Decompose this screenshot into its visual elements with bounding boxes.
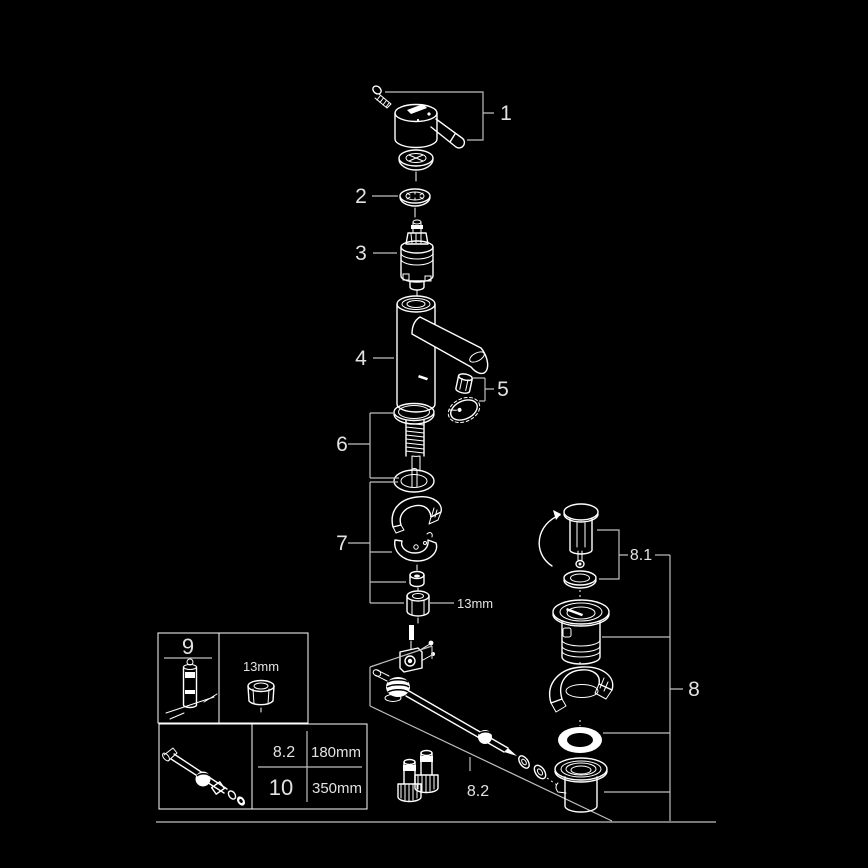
callout-2-label: 2: [355, 185, 367, 208]
dome-cap-drawing: [399, 150, 433, 181]
wrench-size-label: 13mm: [457, 596, 493, 611]
row2-length: 350mm: [312, 780, 362, 797]
popup-rod-drawing: [161, 748, 247, 807]
exploded-diagram-svg: 1 2 3: [0, 0, 868, 868]
info-table: 9 13mm: [158, 633, 367, 809]
callout-5-label: 5: [497, 378, 509, 401]
diagram-canvas: 1 2 3: [0, 0, 868, 868]
callout-8-1: 8.1: [597, 530, 670, 579]
drain-clamp-drawing: [550, 667, 613, 726]
row1-ref: 8.2: [273, 744, 295, 761]
callout-8: 8: [602, 555, 700, 821]
tool-ref-label: 9: [182, 634, 194, 659]
callout-8-1-label: 8.1: [630, 547, 652, 564]
callout-8-label: 8: [688, 678, 700, 701]
callout-4-label: 4: [355, 347, 367, 370]
popup-plug-drawing: [539, 504, 598, 601]
callout-1-label: 1: [500, 102, 512, 125]
hex-nut-drawing: [248, 681, 274, 713]
cartridge-drawing: [401, 220, 433, 296]
drain-housing-drawing: [555, 758, 607, 812]
handle-drawing: [395, 104, 464, 148]
drain-flange-drawing: [553, 600, 609, 667]
callout-8-2-label: 8.2: [467, 783, 489, 800]
supply-connectors-drawing: [398, 751, 438, 802]
callout-7: 7: [336, 482, 406, 603]
faucet-body-drawing: [397, 296, 488, 412]
oring-drawing: [558, 727, 602, 753]
table-wrench-size-label: 13mm: [243, 659, 279, 674]
wrench-size-callout: 13mm: [430, 596, 493, 611]
callout-2: 2: [355, 185, 398, 208]
callout-1: 1: [385, 92, 512, 140]
callout-6-label: 6: [336, 433, 348, 456]
linkage-assembly-drawing: [372, 625, 557, 785]
handle-screw-drawing: [371, 84, 391, 108]
callout-7-label: 7: [336, 532, 348, 555]
row1-length: 180mm: [311, 744, 361, 761]
mounting-set-drawing: [394, 404, 434, 493]
callout-6: 6: [336, 413, 399, 478]
callout-3: 3: [355, 242, 397, 265]
mounting-ring-drawing: [400, 189, 430, 217]
aerator-drawing: [444, 373, 484, 428]
row2-ref: 10: [269, 775, 293, 800]
mounting-tool-drawing: [166, 659, 217, 719]
callout-4: 4: [355, 347, 394, 370]
callout-5: 5: [471, 378, 509, 401]
clamp-set-drawing: [392, 497, 441, 623]
callout-3-label: 3: [355, 242, 367, 265]
